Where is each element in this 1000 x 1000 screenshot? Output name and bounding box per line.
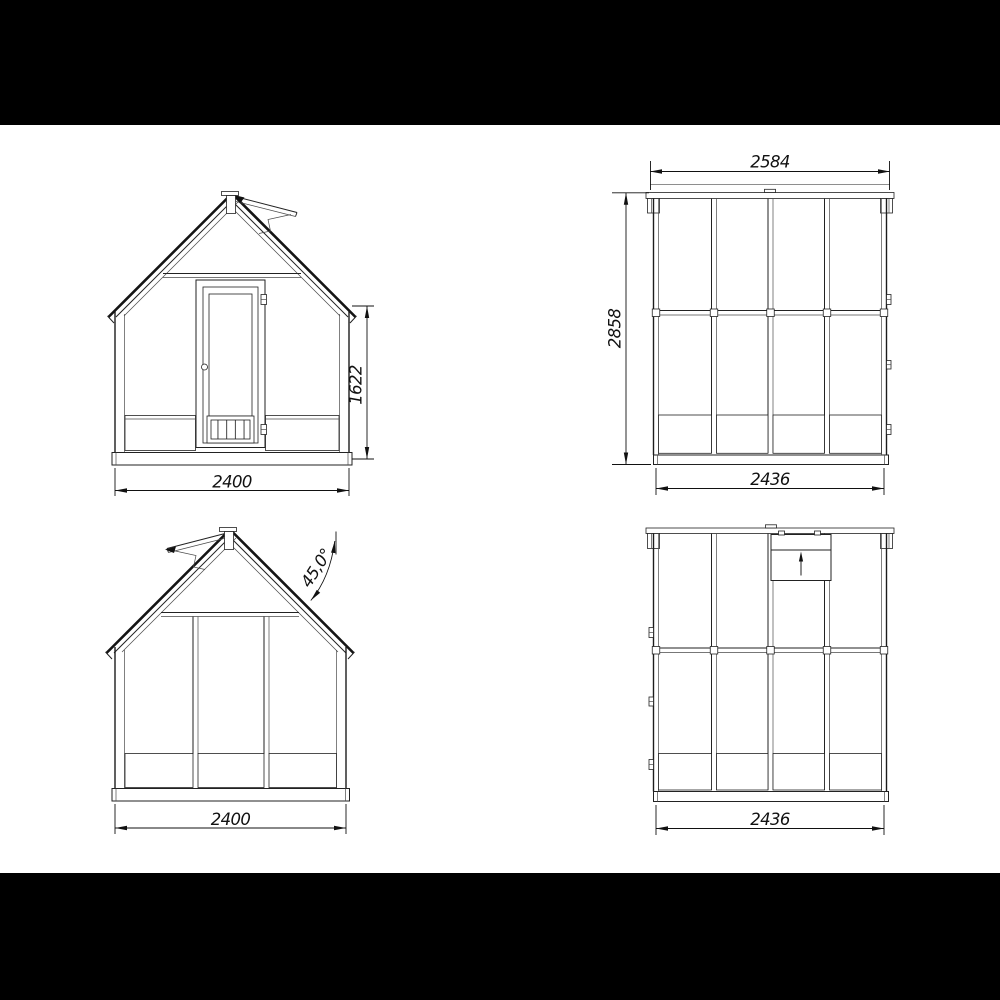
front-collar-tie [163, 274, 301, 278]
side2-slat-panels [659, 754, 882, 791]
side-base [654, 455, 889, 465]
side-eave-rail [652, 309, 888, 317]
front-wall-height-dimension: 1622 [347, 306, 375, 459]
dim-rear-width: 2400 [211, 810, 251, 829]
door-hinge-top [261, 295, 267, 305]
roof-angle-dimension: 45,0° [297, 532, 336, 601]
front-right-slat-panel [266, 416, 340, 451]
side-elevation-left-view: 2436 [646, 525, 894, 835]
dim-side-height: 2858 [606, 309, 625, 349]
side-slat-panels [659, 415, 882, 453]
technical-drawing: 2400 1622 [0, 0, 1000, 1000]
front-elevation-view: 2400 1622 [108, 192, 375, 497]
dim-roof-angle: 45,0° [297, 545, 336, 591]
side-elevation-right-view: 2584 2858 2436 [606, 153, 895, 496]
dim-side-wall-length: 2436 [750, 470, 790, 489]
door-hinge-bottom [261, 425, 267, 435]
rear-width-dimension: 2400 [115, 804, 346, 834]
dim-front-width: 2400 [212, 473, 252, 492]
side2-roof-vent-window [771, 531, 831, 581]
side-roof-ridge-bar [646, 189, 894, 213]
dim-side2-wall-length: 2436 [750, 810, 790, 829]
door-handle [202, 364, 208, 370]
side-wall-length-dimension: 2436 [656, 468, 884, 495]
rear-slat-panels [125, 754, 337, 788]
side2-eave-rail [652, 647, 888, 655]
side-height-dimension: 2858 [606, 193, 652, 465]
side2-roof-ridge-bar [646, 525, 894, 549]
front-left-slat-panel [125, 416, 196, 451]
dim-front-wall-height: 1622 [347, 365, 366, 405]
rear-elevation-view: 2400 45,0° [106, 528, 355, 835]
side2-glazing-bars [654, 534, 887, 792]
rear-mullions [193, 617, 269, 755]
front-door [196, 280, 267, 448]
dim-side-roof-length: 2584 [750, 153, 790, 172]
rear-collar-tie [161, 613, 299, 617]
side2-wall-length-dimension: 2436 [656, 805, 884, 835]
door-slat-panel [207, 416, 254, 443]
front-width-dimension: 2400 [115, 468, 349, 496]
side2-base [654, 792, 889, 802]
rear-base [112, 789, 350, 802]
front-base [112, 453, 352, 466]
